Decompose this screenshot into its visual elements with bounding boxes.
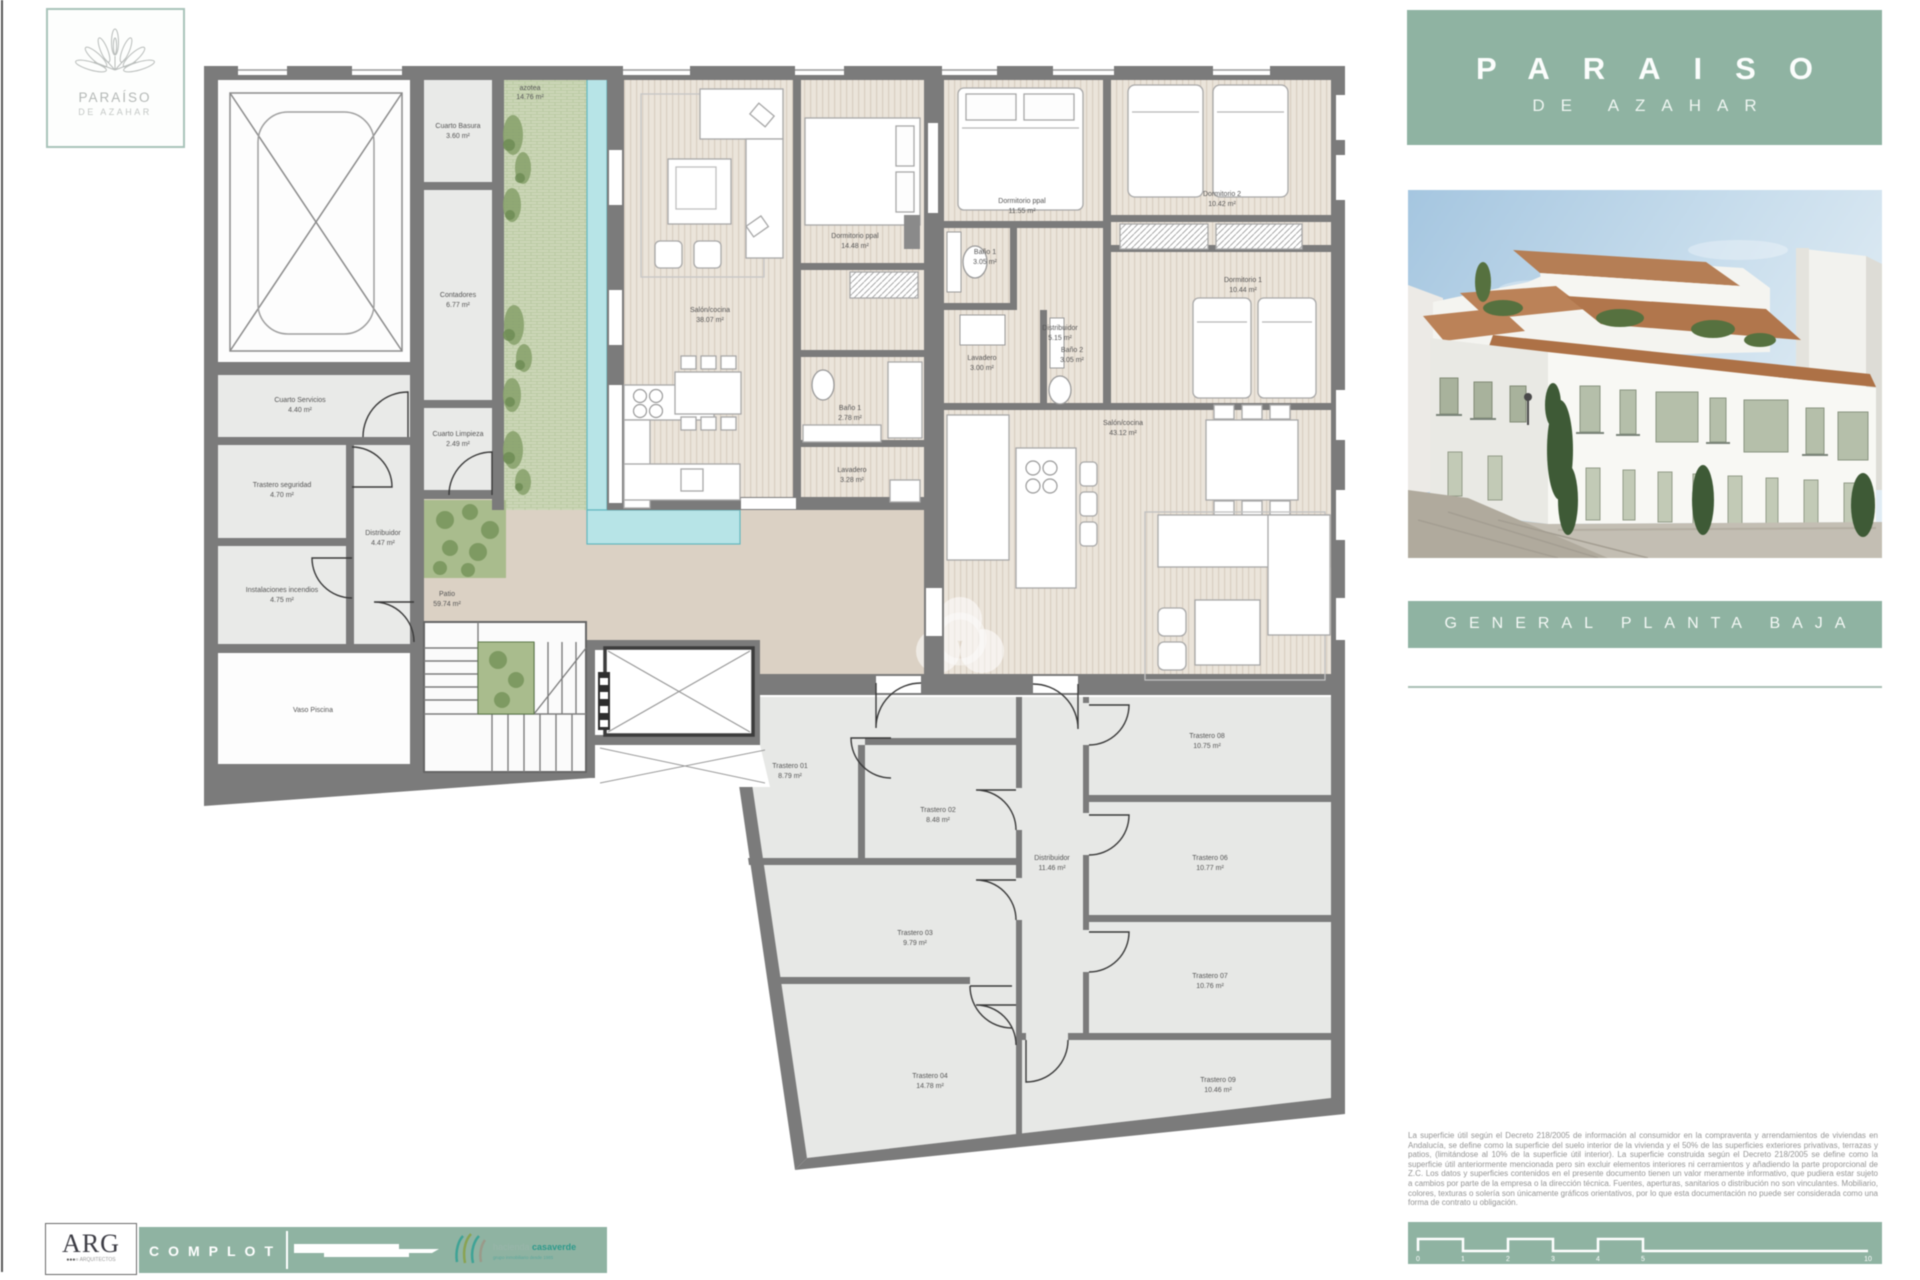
svg-text:Trastero seguridad: Trastero seguridad [253, 482, 312, 489]
svg-text:4.75 m²: 4.75 m² [270, 597, 294, 604]
svg-text:6.77 m²: 6.77 m² [446, 302, 470, 309]
svg-text:Salón/cocina: Salón/cocina [690, 307, 730, 314]
svg-text:4.70 m²: 4.70 m² [270, 492, 294, 499]
svg-text:14.78 m²: 14.78 m² [916, 1083, 944, 1090]
svg-text:2.78 m²: 2.78 m² [838, 415, 862, 422]
svg-text:8.48 m²: 8.48 m² [926, 817, 950, 824]
svg-text:3.05 m²: 3.05 m² [1060, 357, 1084, 364]
svg-text:0: 0 [1416, 1256, 1420, 1263]
svg-text:Cuarto Basura: Cuarto Basura [435, 123, 480, 130]
svg-text:Patio: Patio [439, 591, 455, 598]
svg-text:Lavadero: Lavadero [837, 467, 866, 474]
svg-text:59.74 m²: 59.74 m² [433, 601, 461, 608]
svg-text:14.48 m²: 14.48 m² [841, 243, 869, 250]
svg-text:1: 1 [1461, 1256, 1465, 1263]
svg-text:Lavadero: Lavadero [967, 355, 996, 362]
svg-text:10: 10 [1864, 1256, 1872, 1263]
svg-text:10.46 m²: 10.46 m² [1204, 1087, 1232, 1094]
svg-text:4.40 m²: 4.40 m² [288, 407, 312, 414]
svg-text:Trastero 09: Trastero 09 [1200, 1077, 1236, 1084]
svg-text:Trastero 08: Trastero 08 [1189, 733, 1225, 740]
svg-text:5: 5 [1641, 1256, 1645, 1263]
svg-text:10.44 m²: 10.44 m² [1229, 287, 1257, 294]
svg-text:Baño 1: Baño 1 [974, 249, 996, 256]
svg-text:Instalaciones incendios: Instalaciones incendios [246, 587, 319, 594]
svg-text:Baño 2: Baño 2 [1061, 347, 1083, 354]
svg-text:11.46 m²: 11.46 m² [1038, 865, 1066, 872]
svg-text:10.76 m²: 10.76 m² [1196, 983, 1224, 990]
svg-text:5.15 m²: 5.15 m² [1048, 335, 1072, 342]
svg-text:Vaso Piscina: Vaso Piscina [293, 707, 333, 714]
svg-text:Cuarto Servicios: Cuarto Servicios [274, 397, 326, 404]
svg-text:4: 4 [1596, 1256, 1600, 1263]
svg-text:2.49 m²: 2.49 m² [446, 441, 470, 448]
svg-text:3.60 m²: 3.60 m² [446, 133, 470, 140]
svg-text:10.75 m²: 10.75 m² [1193, 743, 1221, 750]
svg-text:Trastero 04: Trastero 04 [912, 1073, 948, 1080]
svg-text:Trastero 07: Trastero 07 [1192, 973, 1228, 980]
svg-text:38.07 m²: 38.07 m² [696, 317, 724, 324]
svg-text:Dormitorio ppal: Dormitorio ppal [831, 233, 879, 240]
svg-text:Distribuidor: Distribuidor [365, 530, 401, 537]
svg-text:10.77 m²: 10.77 m² [1196, 865, 1224, 872]
svg-text:Cuarto Limpieza: Cuarto Limpieza [433, 431, 484, 438]
svg-text:8.79 m²: 8.79 m² [778, 773, 802, 780]
svg-text:Salón/cocina: Salón/cocina [1103, 420, 1143, 427]
svg-text:grupo inmobiliario desde 1985: grupo inmobiliario desde 1985 [493, 1255, 554, 1260]
svg-text:2: 2 [1506, 1256, 1510, 1263]
svg-text:Trastero 02: Trastero 02 [920, 807, 956, 814]
svg-text:43.12 m²: 43.12 m² [1109, 430, 1137, 437]
svg-text:Dormitorio 1: Dormitorio 1 [1224, 277, 1262, 284]
svg-text:9.79 m²: 9.79 m² [903, 940, 927, 947]
svg-text:3: 3 [1551, 1256, 1555, 1263]
svg-text:Dormitorio ppal: Dormitorio ppal [998, 198, 1046, 205]
svg-text:azotea: azotea [519, 85, 540, 92]
svg-text:3.00 m²: 3.00 m² [970, 365, 994, 372]
svg-text:Baño 1: Baño 1 [839, 405, 861, 412]
svg-text:Trastero 01: Trastero 01 [772, 763, 808, 770]
svg-text:Contadores: Contadores [440, 292, 477, 299]
svg-text:Distribuidor: Distribuidor [1042, 325, 1078, 332]
svg-text:Distribuidor: Distribuidor [1034, 855, 1070, 862]
svg-text:10.42 m²: 10.42 m² [1208, 201, 1236, 208]
svg-text:hacienda casaverde: hacienda casaverde [493, 1242, 576, 1252]
svg-text:Trastero 06: Trastero 06 [1192, 855, 1228, 862]
svg-text:4.47 m²: 4.47 m² [371, 540, 395, 547]
svg-text:Trastero 03: Trastero 03 [897, 930, 933, 937]
svg-text:11.55 m²: 11.55 m² [1008, 208, 1036, 215]
svg-text:3.05 m²: 3.05 m² [973, 259, 997, 266]
svg-text:3.28 m²: 3.28 m² [840, 477, 864, 484]
svg-text:14.76 m²: 14.76 m² [516, 94, 544, 101]
svg-text:Dormitorio 2: Dormitorio 2 [1203, 191, 1241, 198]
